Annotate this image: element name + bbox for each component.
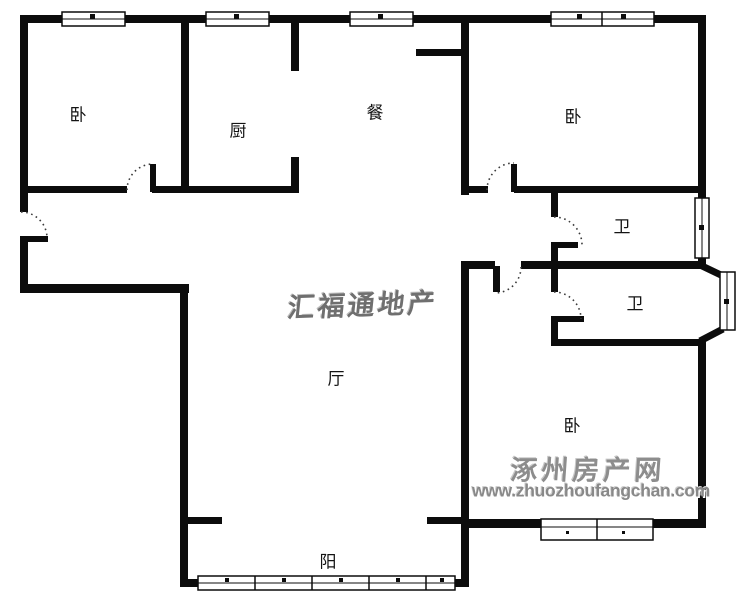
wall-bathroom1-west-stub xyxy=(551,193,558,217)
window-bathroom1-east xyxy=(695,198,709,258)
window-dining-top xyxy=(350,12,413,26)
room-label-balcony: 阳 xyxy=(320,548,337,573)
window-bedroom3-south xyxy=(541,519,653,540)
wall-hall-living-divider-b xyxy=(521,261,706,269)
floorplan-canvas: 卧 厨 餐 卧 卫 卫 卧 厅 阳 汇福通地产 涿州房产网 www.zhuozh… xyxy=(0,0,740,600)
door-arc-bathroom1 xyxy=(554,217,582,245)
wall-living-west xyxy=(180,284,188,587)
wall-kitchen-east-lower xyxy=(291,157,299,193)
wall-bedroom2-south-a xyxy=(461,186,488,193)
window-kitchen-top xyxy=(206,12,269,26)
wall-living-east xyxy=(461,261,469,587)
wall-bedroom1-kitchen-divider xyxy=(181,15,189,193)
wall-kitchen-east-upper xyxy=(291,15,299,71)
wall-kitchen-south xyxy=(152,186,299,193)
door-arc-entry xyxy=(21,212,47,238)
door-leaf-bedroom2 xyxy=(511,164,517,192)
door-leaf-entry xyxy=(20,236,48,242)
wall-bedroom2-south-b xyxy=(514,186,706,193)
wall-hall-living-divider-a xyxy=(461,261,495,269)
door-arc-bedroom2 xyxy=(487,163,514,190)
wall-balcony-divider-left xyxy=(180,517,222,524)
room-label-kitchen: 厨 xyxy=(230,117,247,142)
room-label-bathroom-1: 卫 xyxy=(614,213,631,238)
wall-bedroom1-south-a xyxy=(20,186,127,193)
window-balcony-south xyxy=(198,576,455,590)
window-bathroom2-bay xyxy=(720,272,735,330)
wall-east-upper xyxy=(698,15,706,198)
wall-bathroom2-south xyxy=(551,339,706,346)
door-arc-bedroom1 xyxy=(127,164,153,190)
room-label-bedroom-3: 卧 xyxy=(564,412,581,437)
door-leaf-bathroom2 xyxy=(551,316,584,322)
bay-window-diagonal-bottom xyxy=(700,329,723,341)
room-label-living: 厅 xyxy=(328,365,345,390)
room-label-bedroom-1: 卧 xyxy=(70,101,87,126)
room-label-bedroom-2: 卧 xyxy=(565,103,582,128)
door-leaf-bedroom1 xyxy=(150,164,156,192)
wall-entry-south xyxy=(20,284,189,293)
door-leaf-bedroom3-corridor xyxy=(493,266,500,292)
watermark-site-url: www.zhuozhoufangchan.com xyxy=(472,481,710,502)
window-bedroom1-top xyxy=(62,12,125,26)
window-bedroom2-top xyxy=(551,12,654,26)
door-arc-bathroom2 xyxy=(554,292,581,319)
door-leaf-bathroom1 xyxy=(551,242,578,248)
room-label-dining: 餐 xyxy=(367,99,384,124)
wall-dining-bedroom2-divider xyxy=(461,15,469,195)
watermark-agency: 汇福通地产 xyxy=(286,281,440,325)
room-label-bathroom-2: 卫 xyxy=(627,290,644,315)
wall-left-upper xyxy=(20,15,28,212)
